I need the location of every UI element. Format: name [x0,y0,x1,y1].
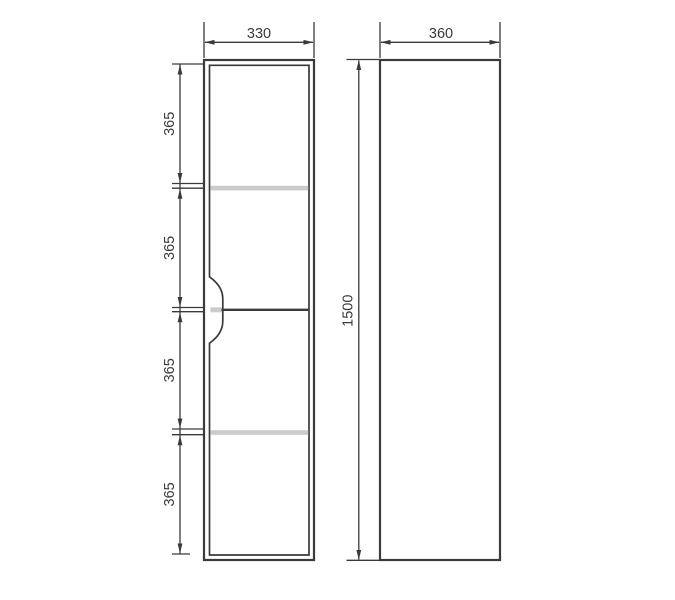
svg-text:365: 365 [162,236,178,260]
svg-text:365: 365 [162,112,178,136]
svg-text:330: 330 [247,26,271,42]
svg-text:365: 365 [162,482,178,506]
svg-text:1500: 1500 [341,295,357,327]
svg-text:360: 360 [429,26,453,42]
svg-text:365: 365 [162,358,178,382]
